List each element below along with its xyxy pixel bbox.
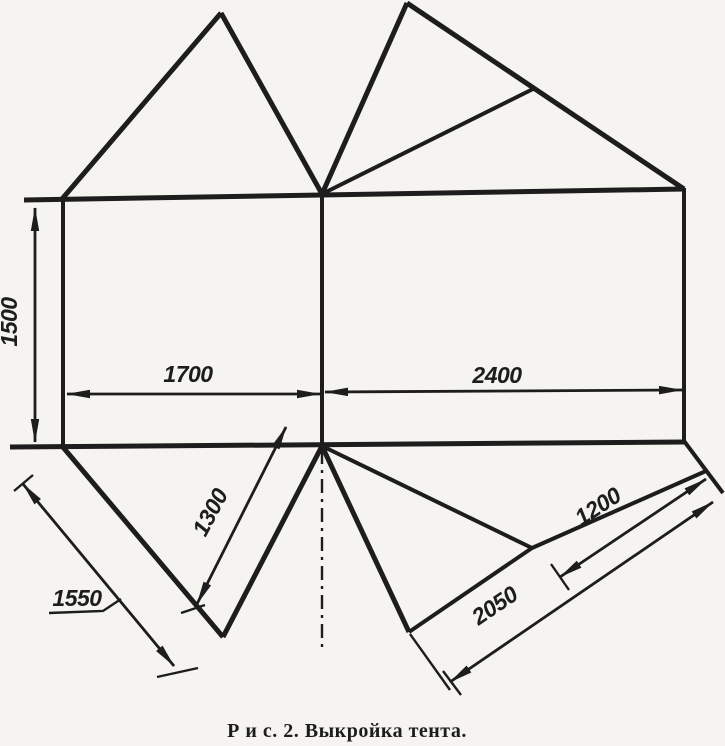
top-right-flap-right-edge [407, 3, 684, 189]
tick-1550-top [14, 475, 33, 491]
top-edge [24, 189, 684, 200]
figure-caption: Р и с. 2. Выкройка тента. [227, 720, 467, 742]
tick-1200-left [551, 564, 569, 590]
technical-drawing: 1500 1700 2400 1550 1300 1200 2050 Р и с… [0, 0, 725, 746]
tick-1550-bottom [157, 668, 198, 677]
bottom-right-flap-left-edge [322, 446, 409, 632]
top-left-flap-left-edge [62, 13, 221, 199]
top-left-flap [62, 13, 322, 199]
label-1500: 1500 [0, 297, 22, 347]
bottom-right-flap-fold-line [322, 446, 532, 548]
bottom-edge [10, 442, 684, 447]
top-right-flap-left-edge [322, 3, 407, 194]
dim-line-1550 [23, 484, 174, 666]
label-2400: 2400 [471, 362, 522, 388]
label-1200: 1200 [570, 482, 626, 531]
label-1700: 1700 [163, 361, 213, 387]
top-right-flap-fold-line [322, 89, 533, 194]
extension-line-2050 [410, 634, 450, 690]
top-right-flap [322, 3, 684, 194]
label-1300: 1300 [187, 484, 233, 540]
bottom-left-flap-inner-edge [223, 446, 322, 637]
dim-line-2400 [325, 390, 682, 392]
tent-pattern-figure: 1500 1700 2400 1550 1300 1200 2050 Р и с… [0, 0, 725, 746]
top-left-flap-right-edge [221, 13, 322, 194]
label-1550: 1550 [52, 585, 102, 611]
bottom-right-corner-edge [684, 441, 723, 493]
panel-body [10, 188, 684, 447]
